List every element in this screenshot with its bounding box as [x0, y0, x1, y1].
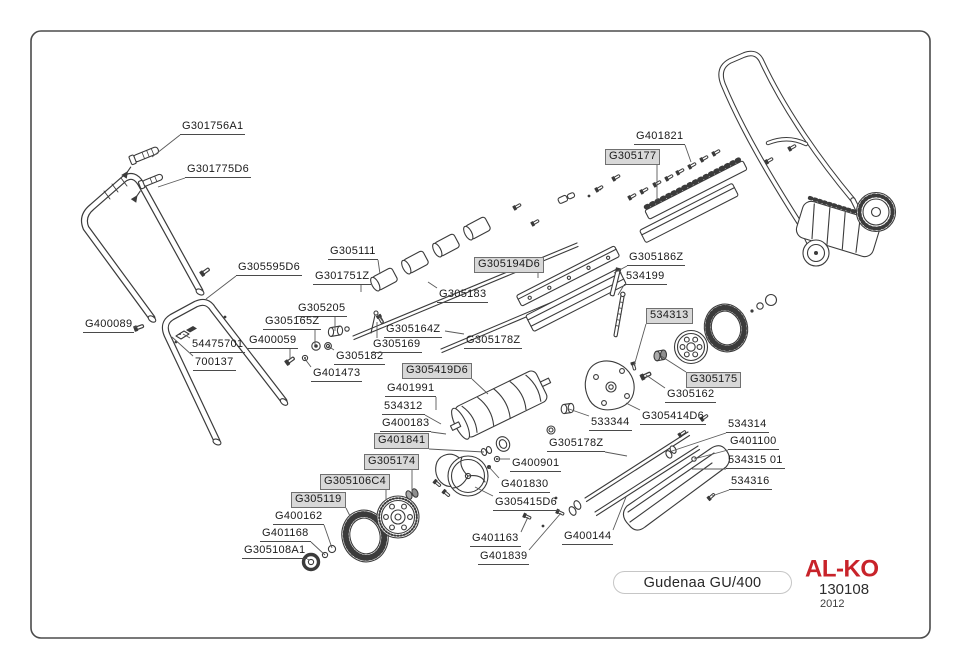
- part-label-G301756A1: G301756A1: [180, 120, 245, 135]
- part-label-534315-01: 534315 01: [726, 454, 785, 469]
- part-label-G305183: G305183: [437, 288, 488, 303]
- part-label-G400183: G400183: [380, 417, 431, 432]
- part-label-G305419D6: G305419D6: [402, 363, 472, 379]
- part-label-G400144: G400144: [562, 530, 613, 545]
- brand-block: AL-KO 130108 2012: [805, 556, 925, 611]
- part-label-G305164Z: G305164Z: [384, 323, 442, 338]
- part-label-533344: 533344: [589, 416, 632, 431]
- part-label-534199: 534199: [624, 270, 667, 285]
- part-label-534316: 534316: [729, 475, 772, 490]
- document-number: 130108: [819, 582, 925, 598]
- part-label-G401841: G401841: [374, 433, 429, 449]
- model-name: Gudenaa GU/400: [644, 575, 762, 591]
- part-label-G305178Z: G305178Z: [547, 437, 605, 452]
- part-label-G305177: G305177: [605, 149, 660, 165]
- ring-drawing: [547, 426, 555, 434]
- alko-logo: AL-KO: [805, 556, 925, 582]
- part-label-G305111: G305111: [328, 245, 378, 260]
- washer-drawing: [302, 355, 307, 360]
- part-label-G400162: G400162: [273, 510, 324, 525]
- part-label-534313: 534313: [646, 308, 693, 324]
- part-label-G305162: G305162: [665, 388, 716, 403]
- ring-drawing: [494, 434, 512, 453]
- part-label-G400089: G400089: [83, 318, 134, 333]
- screw-drawing: [200, 267, 210, 276]
- part-label-534312: 534312: [382, 400, 425, 415]
- exploded-parts-diagram: G301756A1G301775D6G305595D6G400089544757…: [0, 0, 960, 667]
- part-label-G305174: G305174: [364, 454, 419, 470]
- part-label-G305106C4: G305106C4: [320, 474, 390, 490]
- washer-drawing: [312, 342, 320, 350]
- part-label-G400901: G400901: [510, 457, 561, 472]
- part-label-G401830: G401830: [499, 478, 550, 493]
- part-label-G400059: G400059: [247, 334, 298, 349]
- part-label-G305415D6: G305415D6: [493, 496, 559, 511]
- assembled-mower-drawing: [721, 54, 895, 266]
- part-label-G305178Z: G305178Z: [464, 334, 522, 349]
- part-label-G305165Z: G305165Z: [263, 315, 321, 330]
- side-plate-drawing: [585, 361, 636, 410]
- part-label-G305169: G305169: [371, 338, 422, 353]
- part-label-534314: 534314: [726, 418, 769, 433]
- part-label-G401821: G401821: [634, 130, 685, 145]
- roller-drawing: [431, 233, 460, 258]
- part-label-G301751Z: G301751Z: [313, 270, 371, 285]
- part-label-G305414D6: G305414D6: [640, 410, 706, 425]
- part-label-G401473: G401473: [311, 367, 362, 382]
- part-label-G401839: G401839: [478, 550, 529, 565]
- roller-drawing: [462, 216, 491, 241]
- part-label-G305194D6: G305194D6: [474, 257, 544, 273]
- upper-handle-drawing: [84, 176, 204, 323]
- part-label-54475701: 54475701: [190, 338, 245, 353]
- bushing-drawing: [328, 326, 349, 336]
- screw-drawing: [442, 489, 450, 497]
- hub-bushing-drawing: [654, 350, 667, 361]
- part-label-G401168: G401168: [260, 527, 311, 542]
- roller-drawing: [369, 267, 398, 292]
- small-cylinder-drawing: [664, 445, 679, 459]
- model-name-plate: Gudenaa GU/400: [613, 571, 792, 594]
- part-label-G401100: G401100: [728, 435, 779, 450]
- part-label-G401163: G401163: [470, 532, 521, 547]
- part-label-G305108A1: G305108A1: [242, 544, 307, 559]
- ring-drawing: [328, 545, 335, 552]
- part-label-G305595D6: G305595D6: [236, 261, 302, 276]
- screw-drawing: [613, 292, 625, 337]
- part-label-G301775D6: G301775D6: [185, 163, 251, 178]
- bushing-drawing: [481, 446, 493, 456]
- small-cylinder-drawing: [566, 500, 583, 517]
- bolt-drawing: [118, 145, 162, 176]
- bushing-drawing: [561, 403, 574, 413]
- part-label-700137: 700137: [193, 356, 236, 371]
- o-ring-drawing: [757, 303, 763, 309]
- part-label-G305186Z: G305186Z: [627, 251, 685, 266]
- roller-drawing: [400, 250, 429, 275]
- part-label-G305119: G305119: [291, 492, 346, 508]
- part-label-G305175: G305175: [686, 372, 741, 388]
- knife-screws-drawing: [513, 188, 602, 226]
- document-year: 2012: [820, 598, 925, 611]
- o-ring-drawing: [766, 295, 777, 306]
- screw-drawing: [707, 493, 715, 501]
- part-label-G401991: G401991: [385, 382, 436, 397]
